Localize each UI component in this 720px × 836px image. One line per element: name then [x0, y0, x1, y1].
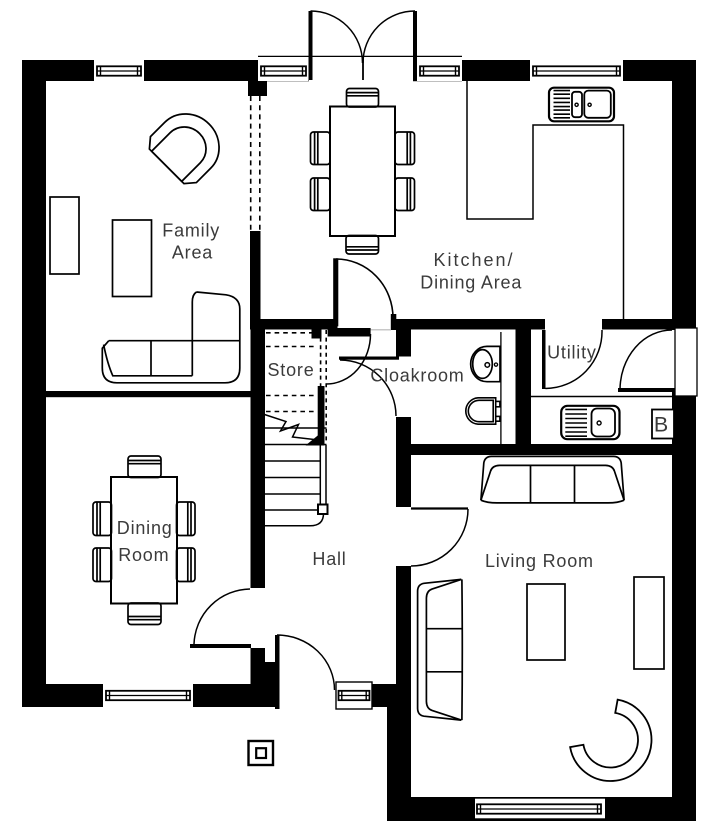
svg-text:Dining Area: Dining Area: [420, 272, 522, 292]
svg-text:B: B: [654, 413, 668, 437]
svg-text:Living Room: Living Room: [485, 551, 594, 571]
svg-text:Family: Family: [162, 221, 220, 241]
svg-text:Area: Area: [172, 242, 213, 262]
svg-text:Utility: Utility: [547, 342, 597, 362]
svg-text:Dining: Dining: [117, 518, 173, 538]
svg-text:Kitchen/: Kitchen/: [433, 250, 514, 270]
svg-text:Cloakroom: Cloakroom: [370, 365, 464, 385]
svg-text:Hall: Hall: [312, 549, 346, 569]
svg-text:Room: Room: [118, 545, 169, 565]
svg-text:Store: Store: [267, 360, 314, 380]
